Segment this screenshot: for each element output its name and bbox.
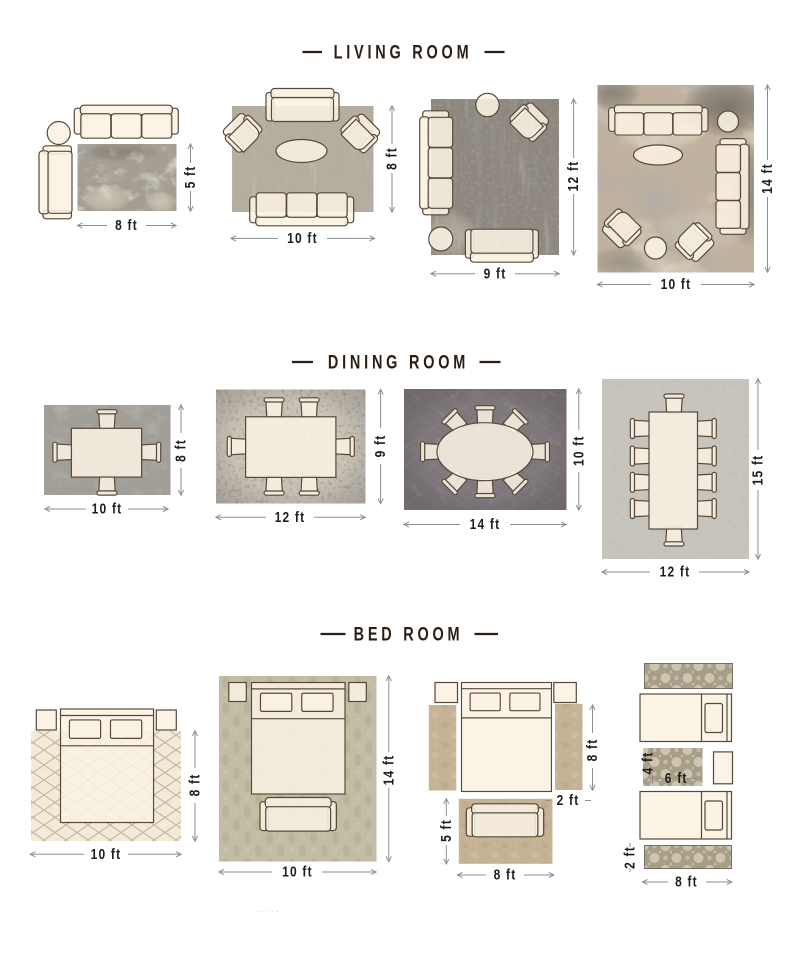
svg-text:5 ft: 5 ft <box>438 819 455 842</box>
svg-text:14 ft: 14 ft <box>759 163 776 194</box>
svg-text:10 ft: 10 ft <box>661 276 692 293</box>
svg-text:DINING ROOM: DINING ROOM <box>328 352 469 373</box>
svg-text:8 ft: 8 ft <box>584 739 601 762</box>
svg-text:8 ft: 8 ft <box>186 774 203 797</box>
svg-text:10 ft: 10 ft <box>287 230 318 247</box>
svg-text:12 ft: 12 ft <box>565 161 582 192</box>
svg-text:. . . . .: . . . . . <box>256 904 279 914</box>
svg-text:9 ft: 9 ft <box>372 435 389 458</box>
svg-text:8 ft: 8 ft <box>383 147 400 170</box>
svg-text:LIVING ROOM: LIVING ROOM <box>334 42 473 63</box>
svg-text:4 ft: 4 ft <box>639 752 656 775</box>
svg-text:8 ft: 8 ft <box>675 873 698 890</box>
svg-text:10 ft: 10 ft <box>282 863 313 880</box>
svg-text:14 ft: 14 ft <box>380 755 397 786</box>
svg-text:15 ft: 15 ft <box>749 455 766 486</box>
svg-text:9 ft: 9 ft <box>484 265 507 282</box>
svg-text:2 ft: 2 ft <box>621 846 638 869</box>
svg-text:5 ft: 5 ft <box>182 166 199 189</box>
svg-text:8 ft: 8 ft <box>172 439 189 462</box>
svg-text:14 ft: 14 ft <box>470 516 501 533</box>
svg-text:12 ft: 12 ft <box>660 563 691 580</box>
svg-text:10 ft: 10 ft <box>92 500 123 517</box>
svg-text:10 ft: 10 ft <box>570 435 587 466</box>
svg-text:BED ROOM: BED ROOM <box>354 623 464 644</box>
svg-text:10 ft: 10 ft <box>91 846 122 863</box>
svg-text:8 ft: 8 ft <box>115 217 138 234</box>
svg-text:8 ft: 8 ft <box>494 866 517 883</box>
svg-text:2 ft: 2 ft <box>557 792 580 809</box>
svg-text:6 ft: 6 ft <box>665 770 688 787</box>
svg-text:12 ft: 12 ft <box>275 509 306 526</box>
